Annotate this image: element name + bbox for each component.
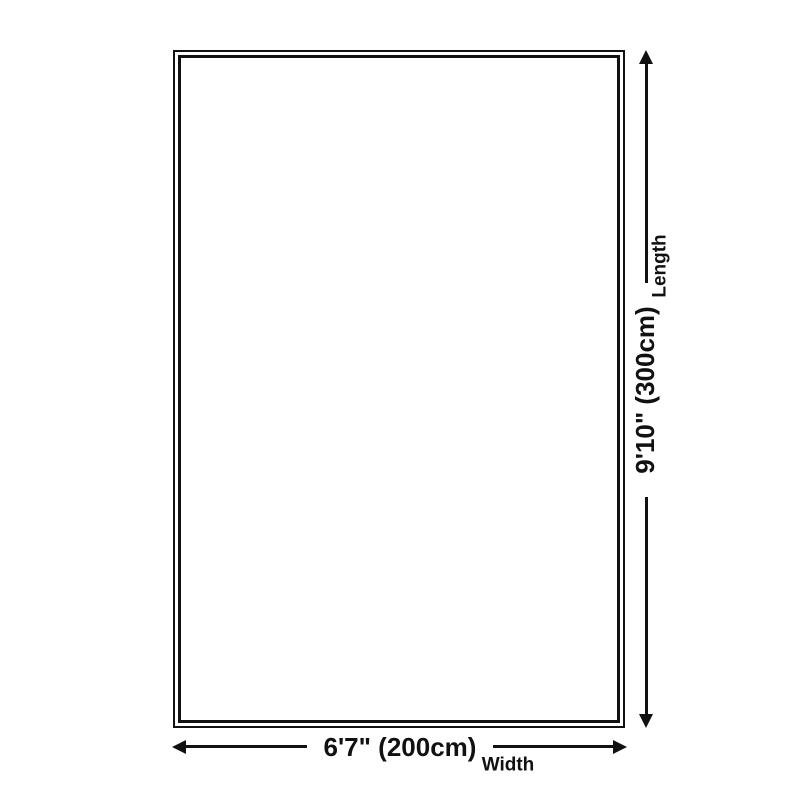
arrow-right-icon — [613, 740, 627, 754]
rug-outline — [173, 50, 625, 728]
length-label: Length — [651, 234, 670, 297]
length-line-top — [645, 60, 648, 283]
width-line-left — [180, 745, 307, 748]
arrow-down-icon — [639, 714, 653, 728]
rug-outline-inner — [178, 55, 620, 723]
width-line-right — [493, 745, 618, 748]
rug-size-diagram: 9'10" (300cm) Length 6'7" (200cm) Width — [0, 0, 800, 800]
length-value: 9'10" (300cm) — [632, 306, 658, 473]
width-label: Width — [482, 756, 535, 775]
length-line-bottom — [645, 497, 648, 718]
width-value: 6'7" (200cm) — [324, 734, 477, 760]
